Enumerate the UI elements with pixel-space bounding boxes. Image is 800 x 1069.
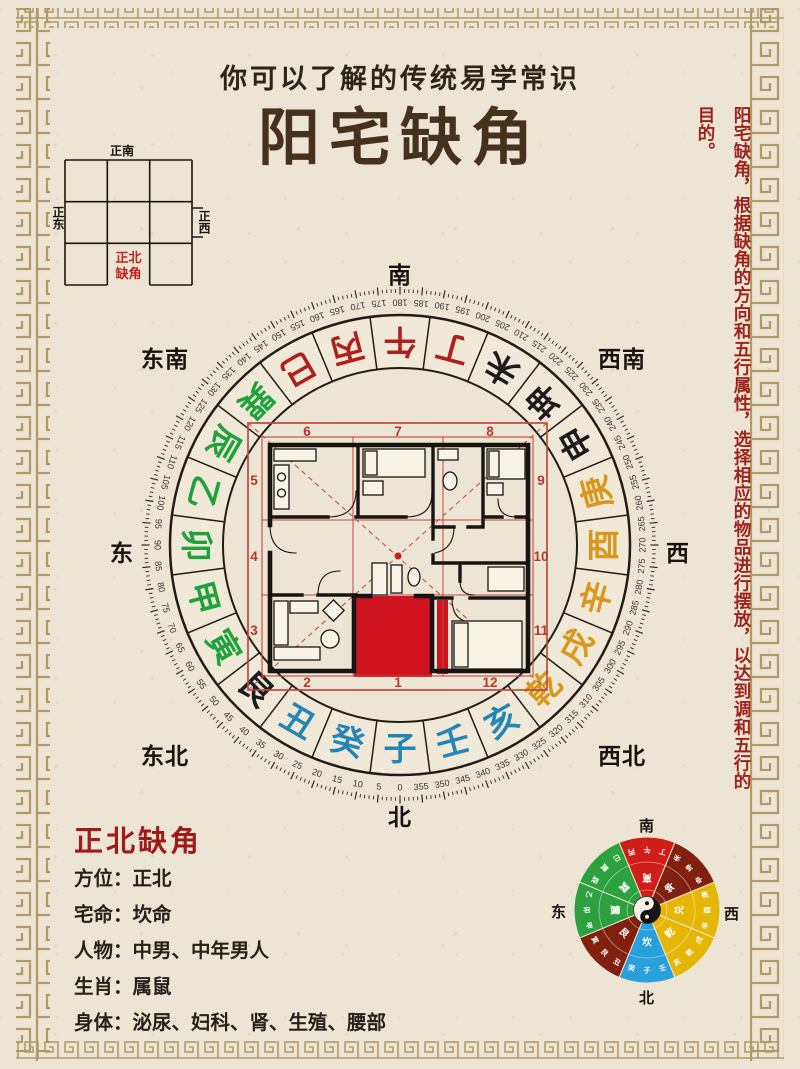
palace-number: 9 xyxy=(537,473,545,488)
info-row-people: 人物：中男、中年男人 xyxy=(74,934,494,968)
mini-bagua-compass: 子癸丑艮寅甲卯乙辰巽巳丙午丁未坤申庚酉辛戌乾亥壬离坤兑乾坎艮震巽 xyxy=(559,822,735,998)
palace-number: 8 xyxy=(486,424,494,439)
compass-label-southeast: 东南 xyxy=(141,340,189,374)
compass-label-east: 东 xyxy=(110,534,134,568)
palace-number: 10 xyxy=(533,549,548,564)
svg-text:兑: 兑 xyxy=(674,905,686,915)
info-row-body: 身体：泌尿、妇科、肾、生殖、腰部 xyxy=(74,1006,494,1040)
info-row-house-fate: 宅命：坎命 xyxy=(74,898,494,932)
mini-label-east: 东 xyxy=(551,901,566,922)
mini-label-south: 南 xyxy=(639,815,654,836)
yin-yang-icon xyxy=(634,897,661,924)
grid-missing-label-line1: 正北 xyxy=(115,250,141,265)
svg-text:坎: 坎 xyxy=(642,937,652,949)
side-note-vertical-text: 阳宅缺角，根据缺角的方向和五行属性，选择相应的物品进行摆放，以达到调和五行的目的… xyxy=(724,106,760,806)
svg-text:离: 离 xyxy=(642,872,652,884)
compass-label-northwest: 西北 xyxy=(598,737,646,771)
grid-label-west: 正西 xyxy=(196,210,213,234)
palace-number: 6 xyxy=(303,424,311,439)
info-panel: 正北缺角 方位：正北 宅命：坎命 人物：中男、中年男人 生肖：属鼠 身体：泌尿、… xyxy=(74,818,494,1040)
info-row-zodiac: 生肖：属鼠 xyxy=(74,970,494,1004)
palace-number: 12 xyxy=(482,675,497,690)
palace-number: 4 xyxy=(250,549,258,564)
svg-text:午: 午 xyxy=(644,846,651,855)
info-row-direction: 方位：正北 xyxy=(74,862,494,896)
compass-label-southwest: 西南 xyxy=(598,340,646,374)
svg-text:卯: 卯 xyxy=(583,907,592,914)
floor-plan: 1 2 3 4 5 6 7 8 9 10 11 12 xyxy=(120,265,680,825)
border-bottom xyxy=(16,1041,784,1061)
plan-center-dot xyxy=(395,553,402,560)
compass-label-west: 西 xyxy=(666,534,690,568)
compass-label-northeast: 东北 xyxy=(141,737,189,771)
palace-number: 3 xyxy=(250,623,258,638)
palace-number: 11 xyxy=(534,623,549,638)
palace-number: 5 xyxy=(250,473,258,488)
mini-label-north: 北 xyxy=(639,987,654,1008)
compass-label-south: 南 xyxy=(388,256,412,290)
svg-text:震: 震 xyxy=(609,904,621,915)
grid-label-east: 正东 xyxy=(50,206,67,230)
border-top xyxy=(16,8,784,28)
poster: 你可以了解的传统易学常识 阳宅缺角 正北 缺角 正南 正东 正西 阳宅缺角，根据… xyxy=(0,0,800,1069)
palace-number: 1 xyxy=(394,675,402,690)
palace-number: 2 xyxy=(303,675,311,690)
grid-label-south: 正南 xyxy=(110,142,134,159)
svg-text:酉: 酉 xyxy=(704,907,712,914)
info-panel-heading: 正北缺角 xyxy=(74,818,494,860)
mini-label-west: 西 xyxy=(724,903,739,924)
svg-text:子: 子 xyxy=(644,967,651,975)
palace-number: 7 xyxy=(394,424,402,439)
